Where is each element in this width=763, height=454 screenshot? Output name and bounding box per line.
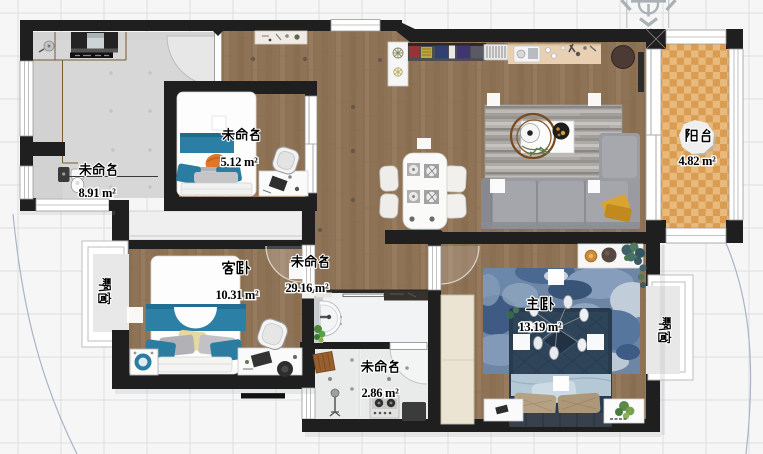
svg-text:5.12 m²: 5.12 m² <box>220 155 258 169</box>
svg-text:2.86 m²: 2.86 m² <box>361 386 399 400</box>
svg-text:13.19 m²: 13.19 m² <box>518 320 562 334</box>
svg-text:8.91 m²: 8.91 m² <box>78 186 116 200</box>
svg-text:10.31 m²: 10.31 m² <box>215 288 259 302</box>
svg-text:4.82 m²: 4.82 m² <box>678 154 716 168</box>
svg-text:29.16 m²: 29.16 m² <box>285 281 329 295</box>
